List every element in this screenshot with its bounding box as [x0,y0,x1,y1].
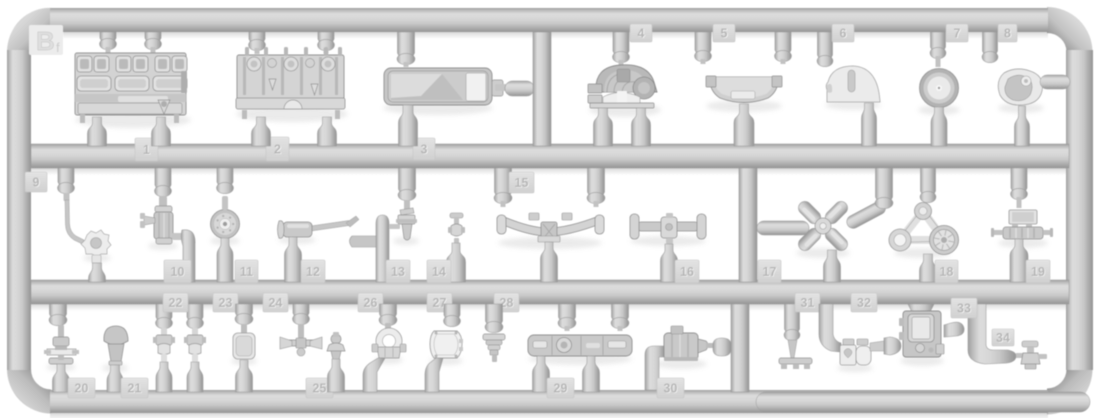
svg-text:7: 7 [954,26,961,40]
svg-text:26: 26 [364,296,378,310]
svg-text:13: 13 [391,265,405,279]
svg-text:3: 3 [421,142,428,156]
svg-text:B: B [36,26,55,56]
svg-text:30: 30 [664,381,678,395]
svg-text:10: 10 [171,265,185,279]
svg-text:f: f [56,40,60,55]
svg-text:33: 33 [957,301,971,315]
svg-text:17: 17 [763,265,777,279]
svg-text:6: 6 [840,26,847,40]
svg-text:12: 12 [306,265,320,279]
svg-text:22: 22 [169,296,183,310]
svg-text:31: 31 [801,296,815,310]
svg-text:15: 15 [515,176,529,190]
svg-text:11: 11 [240,265,253,279]
svg-text:20: 20 [75,381,89,395]
svg-text:21: 21 [128,381,142,395]
svg-text:1: 1 [143,143,150,157]
svg-text:19: 19 [1031,265,1045,279]
svg-text:14: 14 [432,265,446,279]
svg-text:23: 23 [219,296,233,310]
svg-text:16: 16 [680,265,694,279]
svg-text:34: 34 [996,331,1010,345]
svg-text:32: 32 [857,296,871,310]
svg-text:18: 18 [940,265,954,279]
svg-text:29: 29 [554,381,568,395]
svg-text:2: 2 [274,142,281,156]
svg-text:25: 25 [313,381,327,395]
svg-text:24: 24 [269,296,283,310]
svg-text:4: 4 [638,26,645,40]
svg-text:5: 5 [721,26,728,40]
svg-text:9: 9 [33,175,40,189]
svg-text:8: 8 [1004,26,1011,40]
